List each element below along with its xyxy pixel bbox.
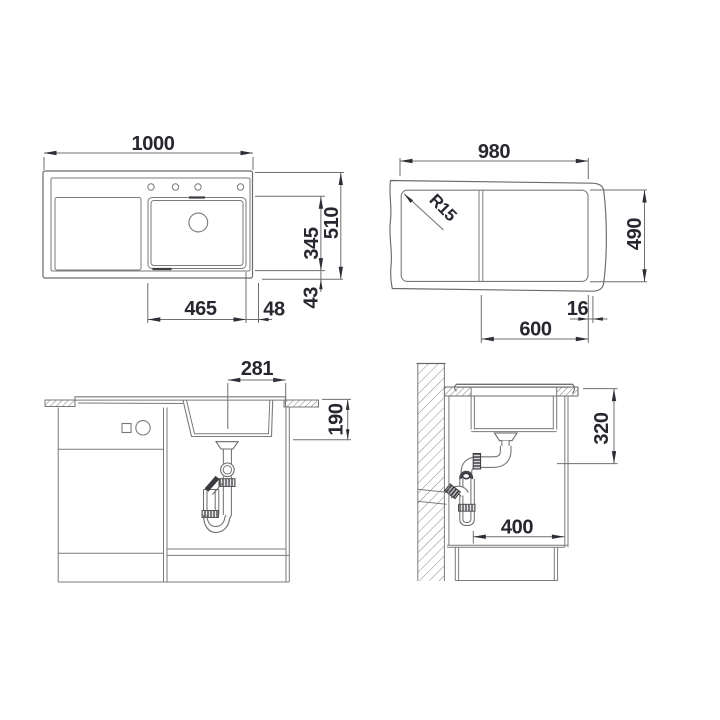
svg-text:1000: 1000	[132, 133, 175, 155]
svg-text:345: 345	[301, 227, 323, 259]
svg-text:980: 980	[478, 141, 510, 163]
svg-text:465: 465	[184, 298, 216, 320]
svg-text:490: 490	[624, 218, 646, 250]
svg-text:48: 48	[263, 299, 285, 321]
svg-text:281: 281	[241, 358, 273, 380]
svg-text:320: 320	[591, 412, 613, 444]
svg-text:190: 190	[326, 403, 348, 435]
svg-text:16: 16	[567, 298, 589, 320]
svg-text:43: 43	[301, 287, 323, 309]
svg-text:400: 400	[501, 517, 533, 539]
svg-text:510: 510	[321, 207, 343, 239]
svg-text:600: 600	[519, 319, 551, 341]
